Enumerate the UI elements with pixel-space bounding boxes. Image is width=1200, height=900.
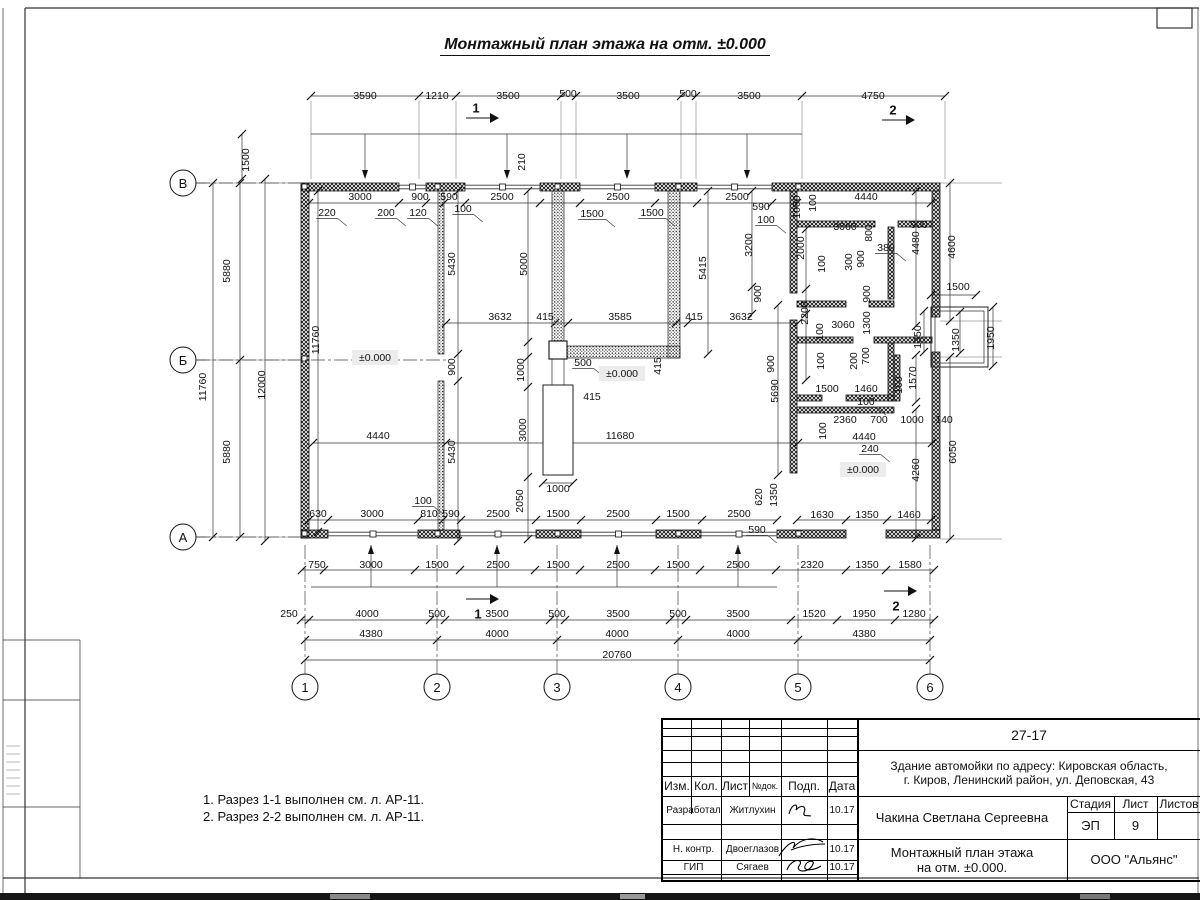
dim-label: 1570: [907, 366, 919, 390]
axis-label: 5: [794, 680, 801, 695]
dim-label: 1000: [900, 414, 924, 426]
col-header-kol: Кол.: [691, 776, 721, 796]
col-header-ndok: №док.: [749, 776, 781, 796]
dim-label: 5000: [518, 252, 530, 276]
dim-label: 220: [318, 207, 336, 219]
dim-label: 700: [870, 414, 888, 426]
dim-label: 100: [414, 495, 432, 507]
sig-name: Житлухин: [721, 796, 781, 824]
dim-label: 1280: [902, 608, 926, 620]
dim-label: 1300: [861, 311, 873, 335]
dim-label: 1500: [240, 148, 252, 172]
dim-label: 100: [893, 376, 905, 394]
dim-label: 3200: [743, 233, 755, 257]
dim-label: 2500: [725, 191, 749, 203]
dim-label: 4000: [726, 628, 750, 640]
dim-label: 3585: [608, 311, 632, 323]
axis-label: 1: [301, 680, 308, 695]
dim-label: 5880: [221, 259, 233, 283]
dim-label: 1460: [854, 383, 878, 395]
dim-label: 500: [669, 608, 687, 620]
dim-label: 3000: [517, 418, 529, 442]
dim-label: 4600: [946, 235, 958, 259]
dim-label: 900: [861, 285, 873, 303]
dim-label: 1520: [802, 608, 826, 620]
dim-label: 500: [548, 608, 566, 620]
drawing-title: Монтажный план этажа на отм. ±0.000.: [857, 839, 1067, 880]
notes-block: 1. Разрез 1-1 выполнен см. л. АР-11. 2. …: [203, 791, 424, 825]
dim-label: 810: [420, 508, 438, 520]
dim-label: 100: [857, 396, 875, 408]
dim-label: 200: [848, 352, 860, 370]
dim-label: 3060: [831, 319, 855, 331]
dim-label: 1500: [666, 559, 690, 571]
dim-label: 500: [428, 608, 446, 620]
sheets-label: Листов: [1157, 796, 1200, 812]
dim-label: 1950: [985, 326, 997, 350]
sig-name: Двоеглазов: [721, 839, 781, 860]
dim-label: 5880: [221, 440, 233, 464]
dim-label: 2050: [514, 489, 526, 513]
dim-label: 12000: [256, 370, 268, 399]
dim-label: 100: [454, 203, 472, 215]
dim-label: 500: [574, 357, 592, 369]
dim-label: 415: [685, 311, 703, 323]
dim-label: 2500: [486, 559, 510, 571]
dim-label: 1210: [425, 90, 449, 102]
axis-label: А: [179, 530, 188, 545]
dim-label: 1500: [640, 207, 664, 219]
dim-label: 1500: [425, 559, 449, 571]
dim-label: 3632: [488, 311, 512, 323]
dim-label: 1500: [815, 383, 839, 395]
sig-date: 10.17: [827, 796, 857, 824]
dim-label: 900: [855, 250, 867, 268]
dim-label: 1350: [768, 483, 780, 507]
dim-label: 11680: [606, 430, 635, 442]
dim-label: 415: [652, 357, 664, 375]
dim-label: 590: [440, 191, 458, 203]
col-header-data: Дата: [827, 776, 857, 796]
dim-label: 100: [807, 194, 819, 212]
dim-label: 250: [280, 608, 298, 620]
dim-label: 500: [559, 88, 577, 100]
signature-razrabotal: [781, 796, 827, 824]
title-block: Изм. Кол. Лист №док. Подп. Дата Разработ…: [661, 718, 1200, 882]
dim-label: 1500: [666, 508, 690, 520]
dim-label: 100: [816, 255, 828, 273]
dim-label: 2500: [606, 191, 630, 203]
note-line: 2. Разрез 2-2 выполнен см. л. АР-11.: [203, 808, 424, 825]
sig-name: Сягаев: [721, 860, 781, 874]
dim-label: 3000: [360, 508, 384, 520]
section-mark-label: 1: [472, 101, 479, 116]
dim-label: 1500: [546, 559, 570, 571]
dim-label: 1630: [810, 509, 834, 521]
axis-label: 6: [926, 680, 933, 695]
dim-label: 2500: [727, 508, 751, 520]
dim-label: 1580: [898, 559, 922, 571]
dim-label: 3000: [348, 191, 372, 203]
dim-label: ±0.000: [359, 352, 391, 364]
dim-label: 3590: [353, 90, 377, 102]
dim-label: 1000: [515, 358, 527, 382]
dim-label: 2360: [833, 414, 857, 426]
dim-label: 1500: [580, 208, 604, 220]
dim-label: 630: [309, 508, 327, 520]
dim-label: 1460: [897, 509, 921, 521]
dim-label: ±0.000: [847, 464, 879, 476]
dim-label: 2500: [726, 559, 750, 571]
stage-label: Стадия: [1067, 796, 1114, 812]
dim-label: 3000: [359, 559, 383, 571]
dim-label: 3500: [616, 90, 640, 102]
dim-label: 1350: [950, 328, 962, 352]
project-name: Чакина Светлана Сергеевна: [857, 796, 1067, 839]
dim-label: 380: [877, 242, 895, 254]
dim-label: 500: [679, 88, 697, 100]
dim-label: 6050: [947, 440, 959, 464]
walls-layer: [301, 183, 988, 538]
dim-label: 590: [748, 524, 766, 536]
section-mark-label: 1: [474, 607, 481, 622]
dim-label: 3500: [496, 90, 520, 102]
dim-label: 2320: [800, 559, 824, 571]
dim-label: 4260: [910, 458, 922, 482]
dim-label: 1950: [852, 608, 876, 620]
dim-label: 5690: [769, 379, 781, 403]
dim-label: 100: [814, 323, 826, 341]
section-mark-label: 2: [889, 103, 896, 118]
dim-label: 2500: [606, 559, 630, 571]
axis-label: 3: [553, 680, 560, 695]
dim-label: 1350: [855, 509, 879, 521]
dim-label: 20760: [602, 649, 631, 661]
dim-label: 750: [308, 559, 326, 571]
dim-label: 590: [752, 201, 770, 213]
dim-label: 4480: [910, 231, 922, 255]
col-header-list: Лист: [721, 776, 749, 796]
dim-label: 240: [861, 443, 879, 455]
doc-number: 27-17: [857, 720, 1200, 750]
dim-label: 3500: [726, 608, 750, 620]
dim-label: 620: [753, 488, 765, 506]
dim-label: 200: [377, 207, 395, 219]
section-mark-label: 2: [892, 599, 899, 614]
dim-label: 4000: [605, 628, 629, 640]
axis-label: 2: [433, 680, 440, 695]
company-name: ООО "Альянс": [1067, 839, 1200, 880]
sig-date: 10.17: [827, 860, 857, 874]
dim-label: 2000: [795, 236, 807, 260]
dim-label: 1350: [855, 559, 879, 571]
sheet-label: Лист: [1114, 796, 1157, 812]
axis-label: 4: [674, 680, 681, 695]
dim-label: 5430: [446, 440, 458, 464]
dim-label: 120: [409, 207, 427, 219]
dim-label: 415: [583, 391, 601, 403]
dim-label: 415: [536, 311, 554, 323]
dim-label: 4000: [355, 608, 379, 620]
note-line: 1. Разрез 1-1 выполнен см. л. АР-11.: [203, 791, 424, 808]
project-address: Здание автомойки по адресу: Кировская об…: [857, 750, 1200, 796]
dim-label: 140: [935, 414, 953, 426]
dim-label: 700: [860, 347, 872, 365]
dim-label: 5430: [446, 252, 458, 276]
dim-label: 3632: [729, 311, 753, 323]
dim-label: 900: [910, 219, 928, 231]
col-header-podp: Подп.: [781, 776, 827, 796]
dim-label: 2200: [799, 301, 811, 325]
dim-label: 4380: [852, 628, 876, 640]
sig-role: Н. контр.: [663, 839, 721, 860]
dim-label: 3500: [606, 608, 630, 620]
sig-role: ГИП: [663, 860, 721, 874]
stage-value: ЭП: [1067, 812, 1114, 839]
dim-label: 900: [446, 358, 458, 376]
dim-label: 11760: [310, 326, 322, 355]
dim-label: 4000: [485, 628, 509, 640]
dim-label: 1000: [546, 483, 570, 495]
dim-label: 590: [442, 508, 460, 520]
col-header-izm: Изм.: [663, 776, 691, 796]
dim-label: ±0.000: [606, 368, 638, 380]
dimension-labels: 1212359012103500500350050035004750150021…: [197, 88, 997, 661]
dim-label: 3060: [833, 221, 857, 233]
axis-label: В: [179, 176, 188, 191]
dim-label: 2500: [606, 508, 630, 520]
dim-label: 4440: [852, 431, 876, 443]
drawing-sheet: { "sheet": { "main_title": "Монтажный пл…: [0, 0, 1200, 900]
sheet-value: 9: [1114, 812, 1157, 839]
dim-label: 100: [815, 352, 827, 370]
page-title: Монтажный план этажа на отм. ±0.000: [430, 36, 780, 54]
dim-label: 1350: [912, 325, 924, 349]
signature-gip: [779, 854, 829, 878]
dim-label: 4380: [359, 628, 383, 640]
dim-label: 11760: [197, 373, 209, 402]
dim-label: 3500: [485, 608, 509, 620]
axis-label: Б: [179, 353, 188, 368]
dim-label: 210: [516, 153, 528, 171]
sig-role: Разработал: [663, 796, 721, 824]
dim-label: 1500: [546, 508, 570, 520]
dim-label: 900: [411, 191, 429, 203]
dim-label: 4440: [854, 191, 878, 203]
dim-label: 3500: [737, 90, 761, 102]
dim-label: 900: [765, 355, 777, 373]
dim-label: 100: [757, 214, 775, 226]
dim-label: 800: [863, 224, 875, 242]
dim-label: 1000: [791, 195, 803, 219]
dim-label: 1500: [946, 281, 970, 293]
dim-label: 100: [817, 422, 829, 440]
dim-label: 300: [843, 253, 855, 271]
dim-label: 4750: [861, 90, 885, 102]
dim-label: 2500: [490, 191, 514, 203]
dim-label: 2500: [486, 508, 510, 520]
dim-label: 5415: [697, 256, 709, 280]
dim-label: 900: [752, 285, 764, 303]
dim-label: 4440: [366, 430, 390, 442]
